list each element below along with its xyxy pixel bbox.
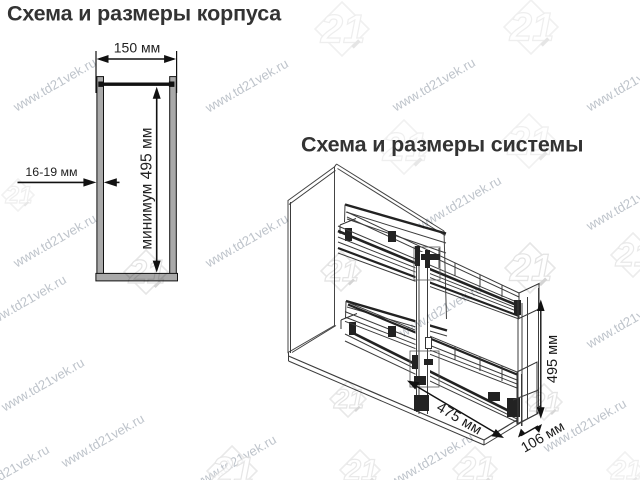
svg-text:21: 21	[457, 450, 495, 480]
svg-text:www.td21vek.ru: www.td21vek.ru	[0, 442, 52, 480]
svg-text:www.td21vek.ru: www.td21vek.ru	[10, 55, 99, 115]
svg-text:www.td21vek.ru: www.td21vek.ru	[0, 355, 87, 415]
svg-text:21: 21	[320, 8, 366, 52]
svg-text:21: 21	[610, 455, 640, 480]
svg-text:минимум 495 мм: минимум 495 мм	[139, 128, 156, 250]
svg-text:www.td21vek.ru: www.td21vek.ru	[202, 211, 291, 271]
svg-text:www.td21vek.ru: www.td21vek.ru	[583, 292, 640, 352]
svg-text:495 мм: 495 мм	[545, 335, 561, 383]
svg-text:21: 21	[382, 126, 428, 170]
svg-text:21: 21	[529, 387, 560, 417]
svg-text:www.td21vek.ru: www.td21vek.ru	[58, 411, 147, 471]
svg-text:www.td21vek.ru: www.td21vek.ru	[583, 55, 640, 115]
svg-text:21: 21	[333, 384, 364, 414]
svg-text:21: 21	[509, 248, 552, 290]
svg-text:21: 21	[509, 6, 555, 50]
svg-text:www.td21vek.ru: www.td21vek.ru	[583, 174, 640, 234]
svg-text:16-19 мм: 16-19 мм	[25, 165, 77, 179]
svg-text:Схема и размеры корпуса: Схема и размеры корпуса	[7, 2, 282, 26]
svg-text:21: 21	[507, 120, 553, 164]
svg-text:21: 21	[5, 182, 33, 209]
svg-text:21: 21	[615, 236, 640, 273]
svg-text:www.td21vek.ru: www.td21vek.ru	[10, 211, 99, 271]
svg-text:150 мм: 150 мм	[114, 40, 161, 56]
svg-text:www.td21vek.ru: www.td21vek.ru	[415, 173, 504, 233]
svg-text:www.td21vek.ru: www.td21vek.ru	[0, 272, 69, 332]
svg-text:475 мм: 475 мм	[434, 400, 485, 439]
svg-text:21: 21	[343, 454, 377, 480]
svg-text:21: 21	[211, 451, 254, 480]
svg-text:www.td21vek.ru: www.td21vek.ru	[202, 56, 291, 116]
svg-text:21: 21	[128, 253, 166, 290]
svg-text:www.td21vek.ru: www.td21vek.ru	[389, 55, 478, 115]
svg-text:21: 21	[324, 255, 358, 288]
